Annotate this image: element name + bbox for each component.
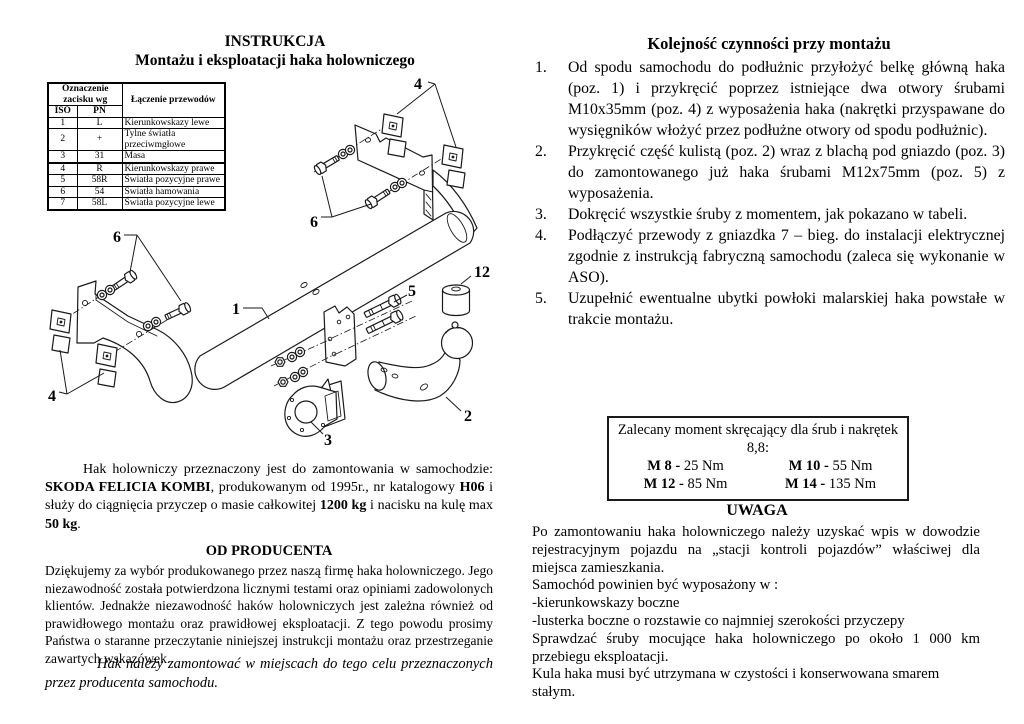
step-text: Podłączyć przewody z gniazdka 7 – bieg. … bbox=[568, 227, 1005, 286]
part-label-6: 6 bbox=[310, 214, 318, 231]
part-label-3: 3 bbox=[324, 432, 332, 449]
assembly-step: 3.Dokręcić wszystkie śruby z momentem, j… bbox=[533, 204, 1005, 225]
step-number: 1. bbox=[535, 57, 547, 78]
nuts bbox=[275, 358, 288, 387]
torque-grid: M 8 - 25 NmM 10 - 55 NmM 12 - 85 NmM 14 … bbox=[613, 457, 903, 493]
step-text: Dokręcić wszystkie śruby z momentem, jak… bbox=[568, 206, 967, 223]
uwaga-section: Po zamontowaniu haka holowniczego należy… bbox=[532, 524, 980, 702]
uwaga-paragraph: Kula haka musi być utrzymana w czystości… bbox=[532, 666, 980, 702]
torque-entry: M 10 - 55 Nm bbox=[758, 457, 903, 475]
vehicle-intro-paragraph: Hak holowniczy przeznaczony jest do zamo… bbox=[45, 461, 493, 534]
uwaga-paragraph: Sprawdzać śruby mocujące haka holownicze… bbox=[532, 631, 980, 667]
torque-entry: M 14 - 135 Nm bbox=[758, 475, 903, 493]
step-number: 3. bbox=[535, 204, 547, 225]
assembly-step: 2.Przykręcić część kulistą (poz. 2) wraz… bbox=[533, 141, 1005, 204]
uwaga-paragraph: -lusterka boczne o rozstawie co najmniej… bbox=[532, 613, 980, 631]
producer-paragraph: Dziękujemy za wybór produkowanego przez … bbox=[45, 562, 493, 667]
step-text: Uzupełnić ewentualne ubytki powłoki mala… bbox=[568, 290, 1005, 328]
step-text: Przykręcić część kulistą (poz. 2) wraz z… bbox=[568, 143, 1005, 202]
uwaga-paragraph: Po zamontowaniu haka holowniczego należy… bbox=[532, 524, 980, 577]
instruction-page: INSTRUKCJA Montażu i eksploatacji haka h… bbox=[0, 0, 1024, 724]
step-text: Od spodu samochodu do podłużnic przyłoży… bbox=[568, 59, 1005, 139]
bolt-m10 bbox=[164, 302, 192, 322]
exploded-diagram: 4 4 6 6 1 5 12 2 3 bbox=[40, 70, 520, 470]
part-label-6: 6 bbox=[113, 229, 121, 246]
ball-arm bbox=[365, 328, 472, 401]
part-label-2: 2 bbox=[464, 408, 472, 425]
ball-mounting-plate bbox=[324, 306, 356, 366]
ball-cap bbox=[443, 285, 470, 328]
part-label-1: 1 bbox=[232, 301, 240, 318]
torque-entry: M 8 - 25 Nm bbox=[613, 457, 758, 475]
assembly-step: 4.Podłączyć przewody z gniazdka 7 – bieg… bbox=[533, 225, 1005, 288]
uwaga-paragraph: -kierunkowskazy boczne bbox=[532, 595, 980, 613]
step-number: 4. bbox=[535, 225, 547, 246]
torque-table-box: Zalecany moment skręcający dla śrub i na… bbox=[607, 416, 909, 501]
socket-plate bbox=[285, 379, 345, 436]
step-number: 5. bbox=[535, 288, 547, 309]
assembly-steps-list: 1.Od spodu samochodu do podłużnic przyło… bbox=[533, 57, 1005, 330]
mounting-note-italic: Hak należy zamontować w miejscach do teg… bbox=[45, 655, 493, 693]
assembly-order-title: Kolejność czynności przy montażu bbox=[533, 34, 1005, 54]
assembly-step: 5.Uzupełnić ewentualne ubytki powłoki ma… bbox=[533, 288, 1005, 330]
doc-subtitle: Montażu i eksploatacji haka holowniczego bbox=[40, 52, 510, 70]
part-label-5: 5 bbox=[408, 283, 416, 300]
bolt-m10 bbox=[313, 153, 341, 175]
assembly-step: 1.Od spodu samochodu do podłużnic przyło… bbox=[533, 57, 1005, 141]
producer-heading: OD PRODUCENTA bbox=[45, 543, 493, 560]
part-label-4: 4 bbox=[414, 76, 422, 93]
doc-title: INSTRUKCJA bbox=[40, 33, 510, 51]
part-label-4: 4 bbox=[48, 388, 56, 405]
uwaga-heading: UWAGA bbox=[533, 502, 981, 520]
uwaga-paragraph: Samochód powinien być wyposażony w : bbox=[532, 577, 980, 595]
torque-box-title: Zalecany moment skręcający dla śrub i na… bbox=[613, 421, 903, 457]
part-label-12: 12 bbox=[474, 264, 490, 281]
step-number: 2. bbox=[535, 141, 547, 162]
torque-entry: M 12 - 85 Nm bbox=[613, 475, 758, 493]
left-bracket bbox=[77, 281, 192, 403]
bolt-m10 bbox=[364, 187, 392, 210]
